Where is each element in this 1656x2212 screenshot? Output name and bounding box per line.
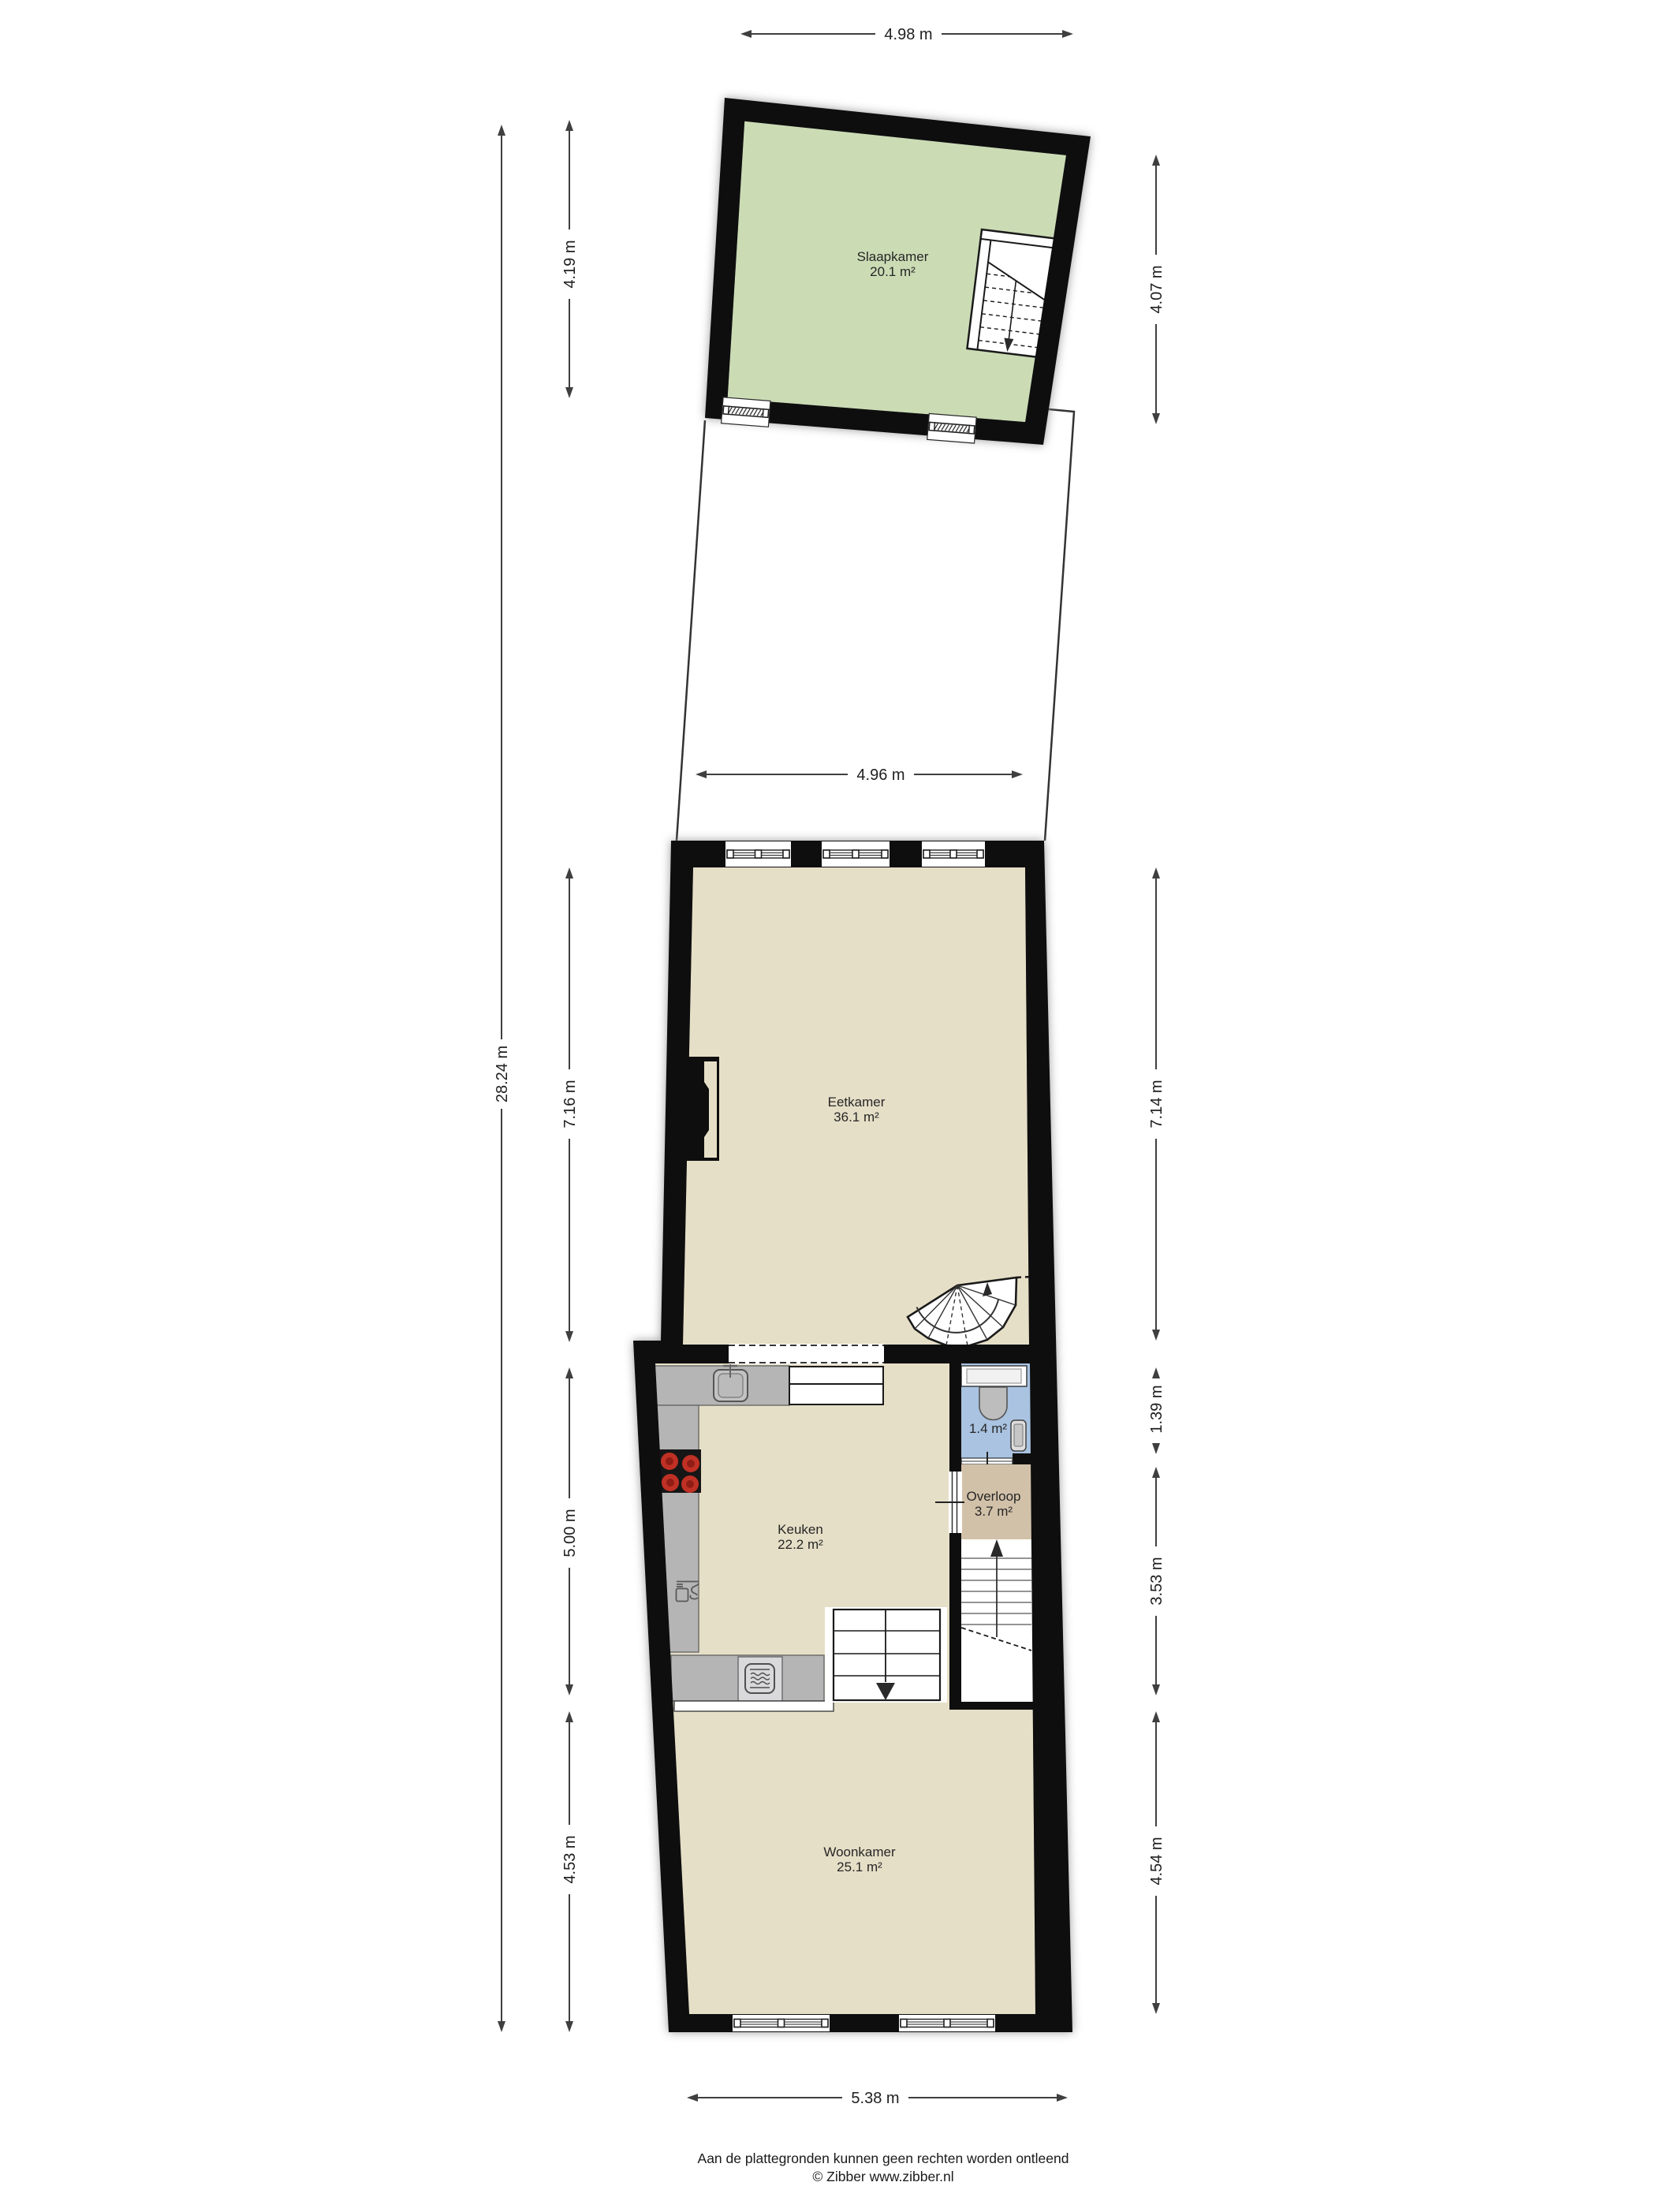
svg-text:25.1 m²: 25.1 m² [837,1859,882,1874]
svg-text:20.1 m²: 20.1 m² [870,264,916,279]
svg-text:7.14 m: 7.14 m [1148,1080,1166,1128]
svg-text:5.00 m: 5.00 m [561,1509,579,1557]
svg-text:Overloop: Overloop [967,1489,1021,1504]
svg-text:4.98 m: 4.98 m [884,26,932,43]
svg-text:5.38 m: 5.38 m [851,2090,899,2107]
svg-text:3.53 m: 3.53 m [1148,1557,1166,1605]
svg-text:4.19 m: 4.19 m [561,240,579,288]
svg-text:4.54 m: 4.54 m [1148,1837,1166,1885]
svg-text:4.96 m: 4.96 m [856,767,904,784]
svg-text:3.7 m²: 3.7 m² [975,1504,1013,1519]
svg-text:4.07 m: 4.07 m [1148,265,1166,313]
svg-text:Aan de plattegronden kunnen ge: Aan de plattegronden kunnen geen rechten… [698,2150,1069,2166]
svg-text:4.53 m: 4.53 m [561,1835,579,1883]
svg-text:1.39 m: 1.39 m [1148,1385,1166,1433]
svg-text:22.2 m²: 22.2 m² [778,1537,823,1552]
svg-text:Keuken: Keuken [778,1522,823,1537]
svg-text:Woonkamer: Woonkamer [823,1845,896,1859]
svg-text:7.16 m: 7.16 m [561,1080,579,1128]
svg-text:28.24 m: 28.24 m [494,1046,511,1102]
svg-text:36.1 m²: 36.1 m² [834,1110,879,1125]
svg-text:© Zibber www.zibber.nl: © Zibber www.zibber.nl [812,2169,953,2184]
svg-text:Eetkamer: Eetkamer [828,1095,886,1110]
svg-text:Slaapkamer: Slaapkamer [857,249,929,264]
svg-text:1.4 m²: 1.4 m² [969,1421,1008,1436]
